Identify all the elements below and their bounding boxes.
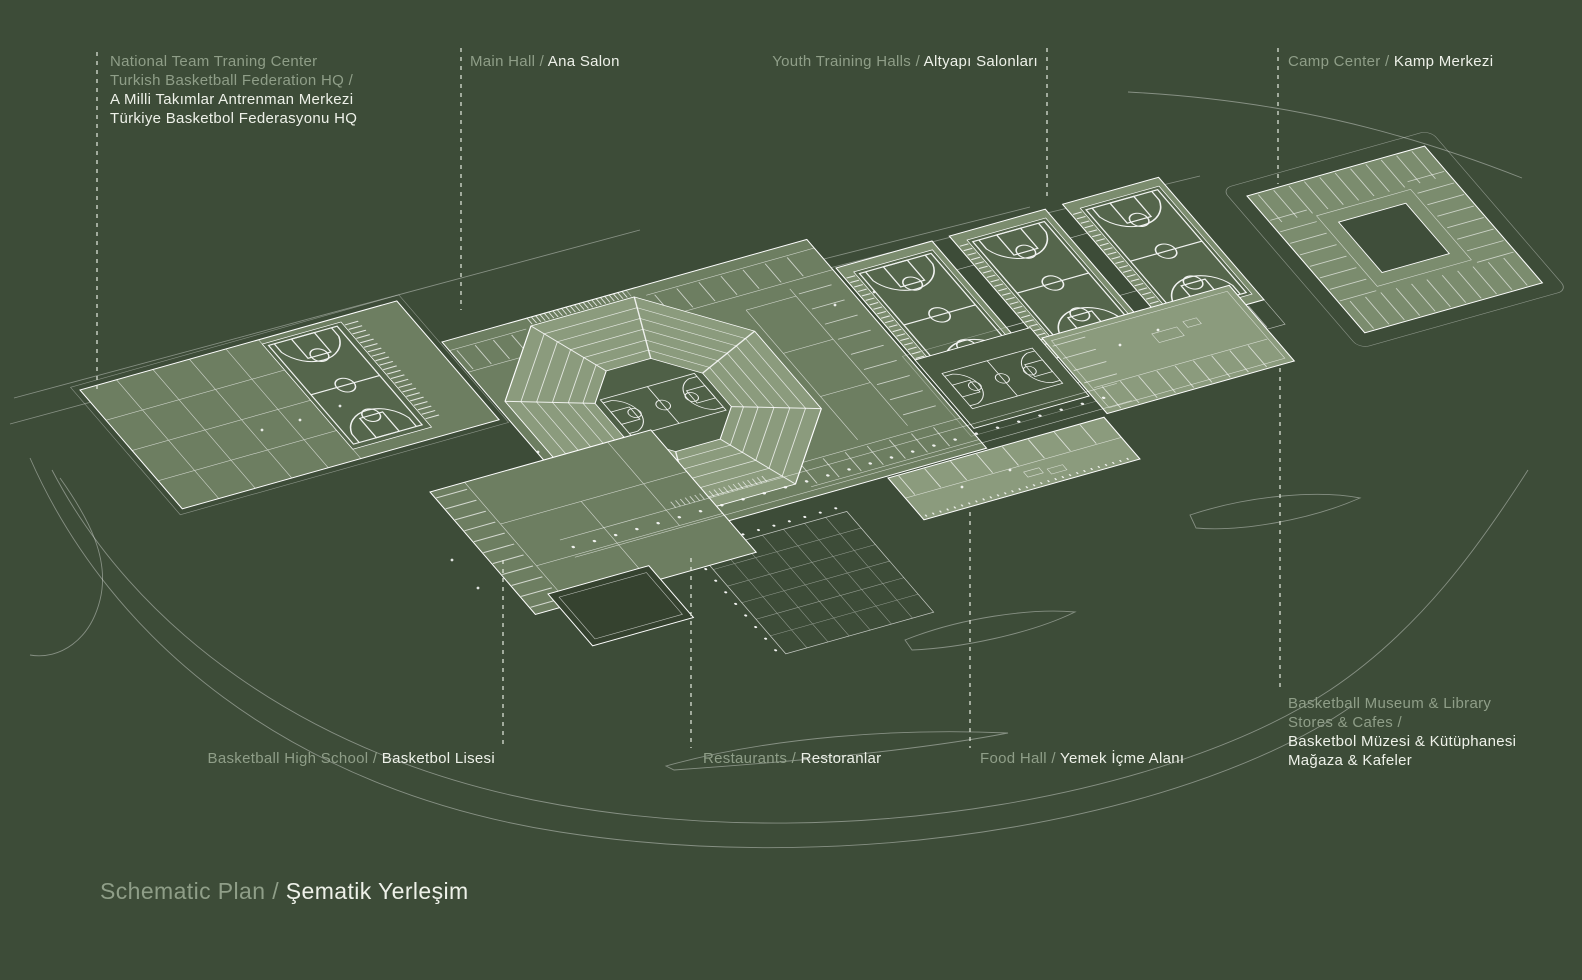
label-high-school: Basketball High School / Basketbol Lises… bbox=[205, 749, 495, 768]
label-en: Camp Center / bbox=[1288, 53, 1389, 70]
label-museum-stores: Basketball Museum & Library Stores & Caf… bbox=[1288, 694, 1516, 770]
schematic-plan-page: National Team Traning Center Turkish Bas… bbox=[0, 0, 1582, 980]
label-line: National Team Traning Center bbox=[110, 52, 357, 71]
label-tr: Basketbol Lisesi bbox=[382, 750, 495, 767]
label-en: Restaurants / bbox=[703, 750, 796, 767]
title-en: Schematic Plan / bbox=[100, 878, 279, 904]
label-en: Basketball High School / bbox=[208, 750, 378, 767]
title-tr: Şematik Yerleşim bbox=[286, 878, 469, 904]
site-plan-drawing bbox=[0, 0, 1582, 980]
label-tr: Restoranlar bbox=[801, 750, 882, 767]
label-tr: Kamp Merkezi bbox=[1394, 53, 1493, 70]
label-tr: Ana Salon bbox=[548, 53, 620, 70]
label-en: Food Hall / bbox=[980, 750, 1056, 767]
site-outline-island bbox=[1190, 494, 1360, 528]
site-outline-island bbox=[905, 611, 1075, 650]
label-en: Youth Training Halls / bbox=[772, 53, 920, 70]
camp-center-building bbox=[1222, 130, 1568, 348]
label-tr: Yemek İçme Alanı bbox=[1060, 750, 1184, 767]
label-food-hall: Food Hall / Yemek İçme Alanı bbox=[980, 749, 1184, 768]
label-line: Türkiye Basketbol Federasyonu HQ bbox=[110, 109, 357, 128]
national-team-center-building bbox=[71, 295, 509, 515]
label-restaurants: Restaurants / Restoranlar bbox=[703, 749, 881, 768]
label-line: Basketball Museum & Library bbox=[1288, 694, 1516, 713]
label-line: A Milli Takımlar Antrenman Merkezi bbox=[110, 90, 357, 109]
label-national-team-center: National Team Traning Center Turkish Bas… bbox=[110, 52, 357, 128]
label-camp-center: Camp Center / Kamp Merkezi bbox=[1288, 52, 1493, 71]
building-slab bbox=[80, 301, 499, 509]
label-line: Mağaza & Kafeler bbox=[1288, 751, 1516, 770]
label-youth-training-halls: Youth Training Halls / Altyapı Salonları bbox=[700, 52, 1038, 71]
site-outline-path bbox=[30, 478, 103, 656]
label-line: Basketbol Müzesi & Kütüphanesi bbox=[1288, 732, 1516, 751]
label-tr: Altyapı Salonları bbox=[924, 53, 1038, 70]
label-main-hall: Main Hall / Ana Salon bbox=[470, 52, 620, 71]
site-outline-path bbox=[1128, 92, 1522, 178]
label-line: Stores & Cafes / bbox=[1288, 713, 1516, 732]
drawing-title: Schematic Plan / Şematik Yerleşim bbox=[100, 882, 469, 901]
label-line: Turkish Basketball Federation HQ / bbox=[110, 71, 357, 90]
label-en: Main Hall / bbox=[470, 53, 544, 70]
site-outline-path bbox=[52, 470, 1528, 823]
bollards bbox=[696, 558, 778, 653]
